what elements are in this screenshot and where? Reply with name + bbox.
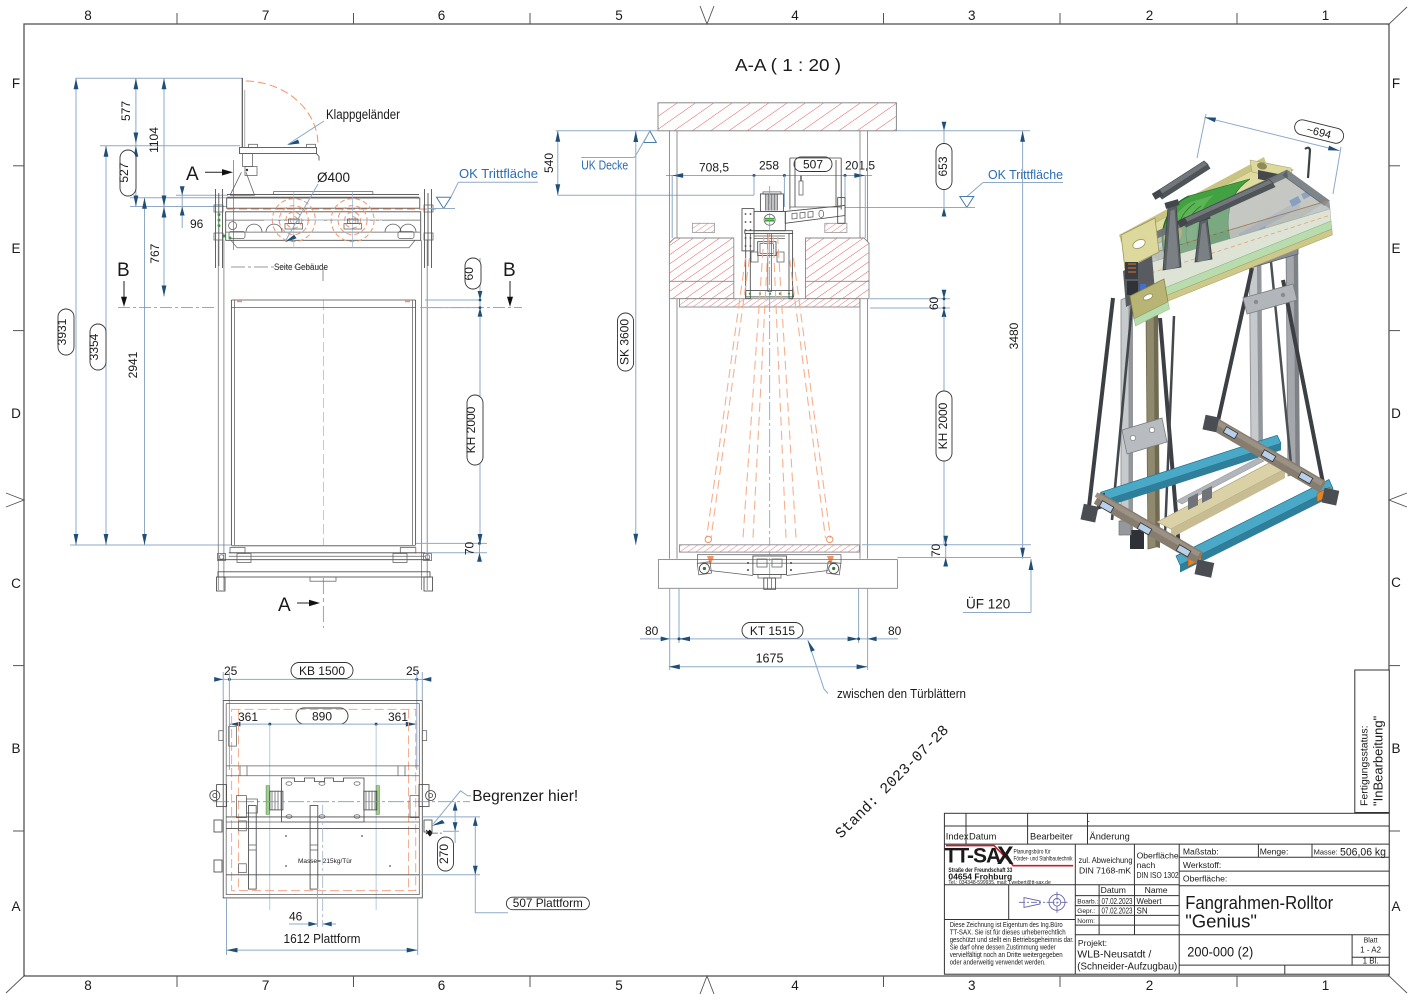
svg-text:3: 3 bbox=[968, 8, 976, 23]
svg-text:Name: Name bbox=[1145, 885, 1168, 895]
svg-text:70: 70 bbox=[463, 542, 477, 556]
svg-text:2: 2 bbox=[1146, 8, 1154, 23]
svg-text:D: D bbox=[11, 406, 21, 421]
svg-text:1675: 1675 bbox=[756, 652, 784, 666]
svg-text:B: B bbox=[503, 260, 516, 281]
svg-text:767: 767 bbox=[148, 243, 162, 263]
svg-text:1612 Plattform: 1612 Plattform bbox=[284, 931, 361, 946]
svg-text:577: 577 bbox=[119, 101, 133, 121]
svg-text:.: . bbox=[1088, 814, 1091, 824]
svg-text:361: 361 bbox=[388, 710, 408, 724]
svg-text:Datum: Datum bbox=[969, 832, 997, 842]
svg-text:8: 8 bbox=[84, 978, 92, 993]
svg-text:A-A ( 1 : 20 ): A-A ( 1 : 20 ) bbox=[735, 55, 841, 75]
svg-text:zul. Abweichung: zul. Abweichung bbox=[1079, 855, 1133, 865]
svg-text:60: 60 bbox=[927, 297, 941, 311]
svg-text:2941: 2941 bbox=[126, 351, 140, 378]
svg-text:70: 70 bbox=[929, 544, 943, 558]
svg-text:DIN 7168-mK: DIN 7168-mK bbox=[1079, 866, 1131, 876]
svg-text:KT 1515: KT 1515 bbox=[750, 624, 795, 638]
svg-text:653: 653 bbox=[936, 156, 950, 176]
svg-text:"Genius": "Genius" bbox=[1185, 911, 1257, 932]
svg-text:Förder- und Stahlbautechnik: Förder- und Stahlbautechnik bbox=[1014, 856, 1074, 863]
svg-text:X: X bbox=[997, 842, 1014, 870]
svg-text:nach: nach bbox=[1137, 860, 1156, 870]
svg-text:OK Trittfläche: OK Trittfläche bbox=[459, 167, 538, 181]
svg-text:Werkstoff:: Werkstoff: bbox=[1183, 860, 1221, 870]
svg-text:527: 527 bbox=[117, 162, 131, 182]
svg-text:7: 7 bbox=[262, 978, 270, 993]
svg-text:A: A bbox=[186, 164, 199, 185]
svg-text:Maßstab:: Maßstab: bbox=[1183, 847, 1219, 857]
svg-text:270: 270 bbox=[437, 844, 451, 864]
svg-text:D: D bbox=[1391, 406, 1401, 421]
svg-text:TT-SA: TT-SA bbox=[945, 845, 1001, 868]
svg-text:361: 361 bbox=[238, 710, 258, 724]
svg-text:506,06 kg: 506,06 kg bbox=[1340, 847, 1386, 859]
svg-text:07.02.2023: 07.02.2023 bbox=[1102, 897, 1133, 906]
svg-text:258: 258 bbox=[759, 159, 779, 173]
svg-text:890: 890 bbox=[312, 710, 332, 724]
svg-text:E: E bbox=[1391, 241, 1400, 256]
svg-text:5: 5 bbox=[615, 8, 623, 23]
svg-text:1: 1 bbox=[1322, 8, 1330, 23]
svg-text:3931: 3931 bbox=[55, 318, 69, 345]
svg-text:3354: 3354 bbox=[87, 333, 101, 360]
svg-text:4: 4 bbox=[791, 8, 799, 23]
svg-text:SN: SN bbox=[1137, 907, 1148, 916]
svg-text:6: 6 bbox=[438, 978, 446, 993]
svg-text:1: 1 bbox=[1322, 978, 1330, 993]
svg-text:96: 96 bbox=[190, 217, 204, 231]
svg-text:Projekt:: Projekt: bbox=[1078, 938, 1107, 948]
svg-text:A: A bbox=[278, 595, 291, 616]
svg-text:46: 46 bbox=[289, 910, 303, 924]
svg-text:507: 507 bbox=[803, 158, 823, 172]
svg-text:Blatt: Blatt bbox=[1364, 938, 1378, 945]
svg-text:8: 8 bbox=[84, 8, 92, 23]
svg-text:5: 5 bbox=[615, 978, 623, 993]
svg-text:zwischen den Türblättern: zwischen den Türblättern bbox=[837, 686, 966, 701]
svg-text:Seite Gebäude: Seite Gebäude bbox=[274, 262, 328, 273]
svg-text:Webert: Webert bbox=[1137, 897, 1163, 906]
svg-text:Planungsbüro für: Planungsbüro für bbox=[1014, 849, 1052, 856]
svg-text:B: B bbox=[11, 741, 20, 756]
svg-text:1 Bl.: 1 Bl. bbox=[1363, 957, 1379, 966]
svg-text:F: F bbox=[1392, 76, 1400, 91]
svg-text:"InBearbeitung": "InBearbeitung" bbox=[1371, 715, 1386, 806]
svg-text:2: 2 bbox=[1146, 978, 1154, 993]
svg-text:80: 80 bbox=[645, 624, 659, 638]
svg-text:oder anderweitig verwendet wer: oder anderweitig verwendet werden. bbox=[950, 958, 1046, 967]
svg-text:Gepr.:: Gepr.: bbox=[1077, 908, 1095, 915]
svg-text:KB 1500: KB 1500 bbox=[299, 664, 345, 678]
svg-text:3480: 3480 bbox=[1007, 322, 1021, 349]
svg-text:Masse= 215kg/Tür: Masse= 215kg/Tür bbox=[298, 858, 353, 865]
svg-text:E: E bbox=[11, 241, 20, 256]
svg-text:WLB-Neusatdt /: WLB-Neusatdt / bbox=[1077, 949, 1151, 961]
svg-text:Fertigungsstatus:: Fertigungsstatus: bbox=[1359, 725, 1371, 806]
svg-text:6: 6 bbox=[438, 8, 446, 23]
svg-text:Begrenzer hier!: Begrenzer hier! bbox=[472, 788, 578, 805]
svg-text:507 Plattform: 507 Plattform bbox=[513, 896, 583, 910]
svg-text:3: 3 bbox=[968, 978, 976, 993]
svg-text:B: B bbox=[117, 260, 130, 281]
svg-text:ÜF 120: ÜF 120 bbox=[966, 597, 1010, 612]
svg-text:UK Decke: UK Decke bbox=[581, 159, 628, 173]
svg-text:80: 80 bbox=[888, 624, 902, 638]
svg-text:C: C bbox=[1391, 575, 1401, 590]
svg-text:708,5: 708,5 bbox=[699, 161, 729, 175]
svg-text:Boarb.:: Boarb.: bbox=[1077, 898, 1098, 905]
svg-text:1104: 1104 bbox=[147, 127, 161, 153]
svg-text:07.02.2023: 07.02.2023 bbox=[1102, 907, 1133, 916]
svg-text:DIN ISO 1302: DIN ISO 1302 bbox=[1137, 870, 1179, 880]
svg-text:A: A bbox=[11, 899, 20, 914]
svg-text:200-000 (2): 200-000 (2) bbox=[1187, 944, 1253, 960]
svg-text:Datum: Datum bbox=[1101, 885, 1126, 895]
svg-text:25: 25 bbox=[224, 664, 238, 678]
svg-text:7: 7 bbox=[262, 8, 270, 23]
svg-text:Oberfläche: Oberfläche bbox=[1137, 851, 1179, 861]
svg-text:Menge:: Menge: bbox=[1260, 847, 1289, 857]
svg-text:B: B bbox=[1391, 741, 1400, 756]
svg-text:Ø400: Ø400 bbox=[317, 170, 350, 185]
svg-text:C: C bbox=[11, 576, 21, 591]
svg-text:25: 25 bbox=[406, 664, 420, 678]
svg-text:Masse:: Masse: bbox=[1314, 848, 1338, 857]
svg-text:Tel.: 034348-599935, mail: t.w: Tel.: 034348-599935, mail: t.webert@tt-s… bbox=[948, 880, 1051, 886]
svg-text:Bearbeiter: Bearbeiter bbox=[1030, 832, 1073, 842]
svg-text:60: 60 bbox=[462, 267, 476, 281]
svg-text:OK Trittfläche: OK Trittfläche bbox=[988, 168, 1063, 182]
svg-text:Änderung: Änderung bbox=[1090, 832, 1130, 842]
svg-text:Index: Index bbox=[946, 832, 969, 842]
svg-text:Klappgeländer: Klappgeländer bbox=[326, 107, 400, 122]
svg-text:KH 2000: KH 2000 bbox=[936, 402, 950, 449]
svg-text:F: F bbox=[12, 76, 20, 91]
svg-text:Oberfläche:: Oberfläche: bbox=[1183, 873, 1227, 883]
svg-text:(Schneider-Aufzugbau): (Schneider-Aufzugbau) bbox=[1077, 961, 1177, 973]
svg-text:540: 540 bbox=[542, 153, 556, 173]
svg-text:Norm:: Norm: bbox=[1077, 918, 1095, 925]
svg-text:KH 2000: KH 2000 bbox=[464, 406, 478, 453]
svg-text:4: 4 bbox=[791, 978, 799, 993]
svg-text:SK 3600: SK 3600 bbox=[618, 319, 632, 365]
svg-text:1 - A2: 1 - A2 bbox=[1360, 946, 1381, 955]
svg-text:A: A bbox=[1391, 899, 1400, 914]
